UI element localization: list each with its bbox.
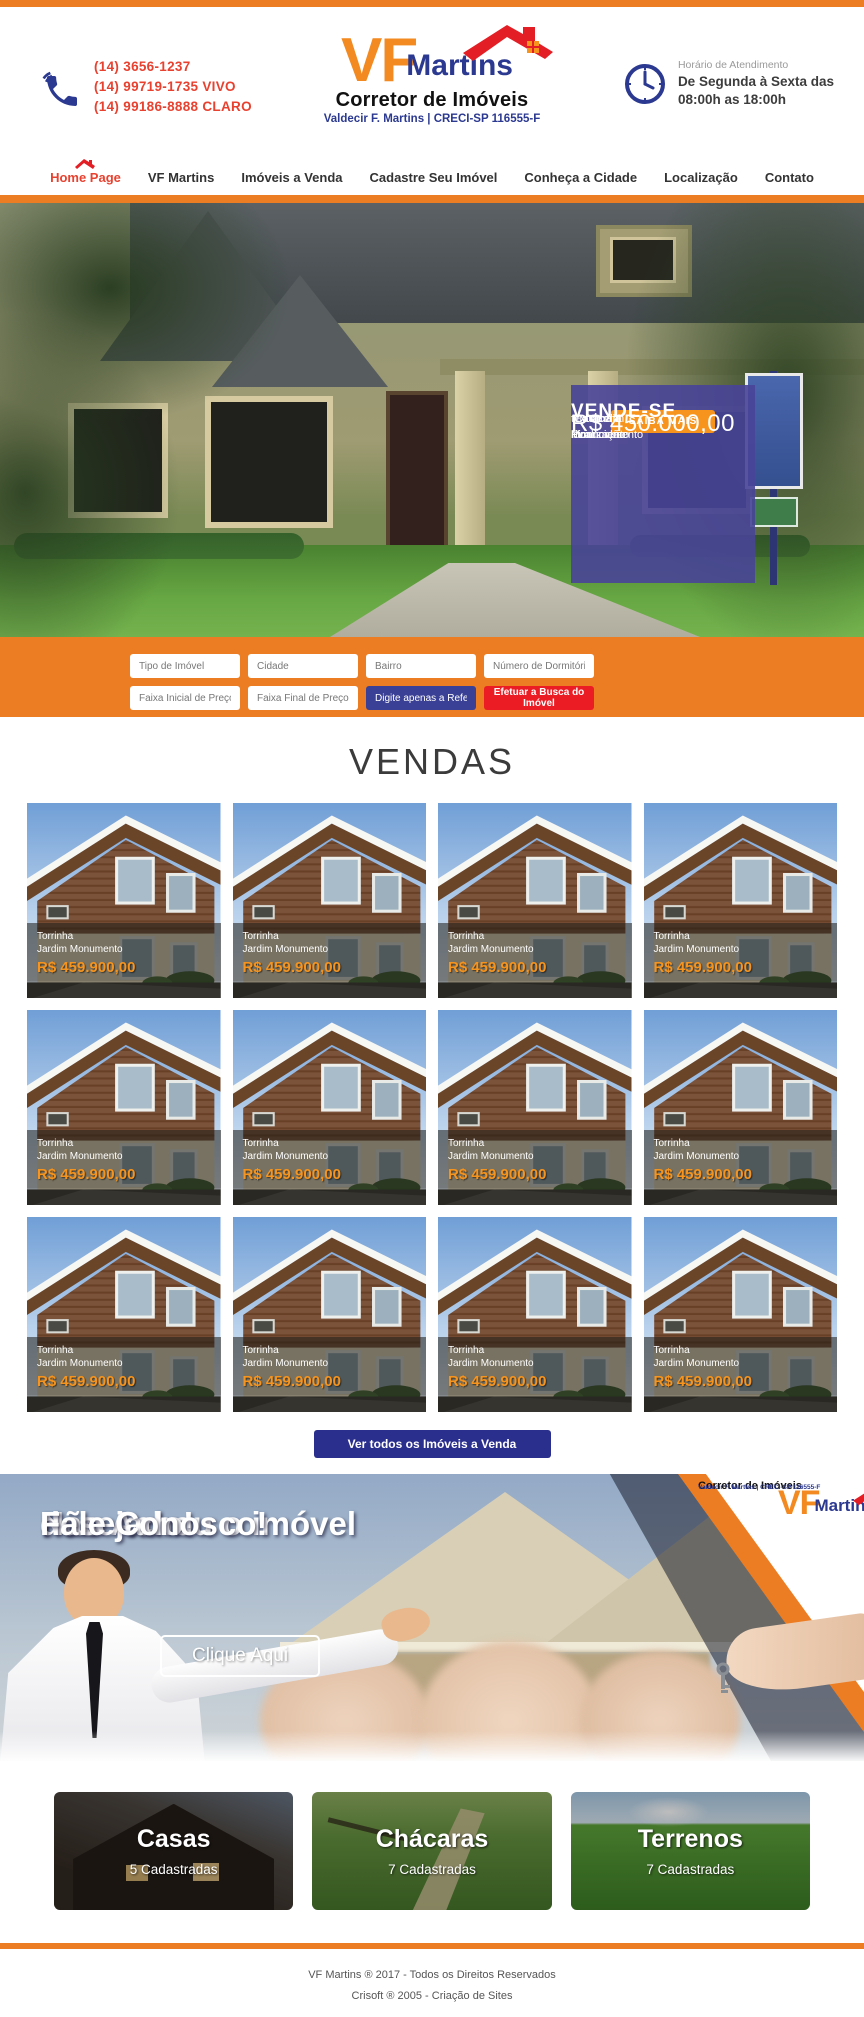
property-neighborhood: Jardim Monumento <box>448 1150 622 1163</box>
opening-hours: Horário de Atendimento De Segunda à Sext… <box>622 59 834 109</box>
property-price: R$ 459.900,00 <box>243 1166 417 1183</box>
property-city: Torrinha <box>654 930 828 943</box>
nav-imoveis-a-venda[interactable]: Imóveis a Venda <box>241 170 342 185</box>
neighborhood-input[interactable] <box>366 654 476 678</box>
property-neighborhood: Jardim Monumento <box>243 1150 417 1163</box>
property-card[interactable]: Torrinha Jardim Monumento R$ 459.900,00 <box>233 1217 427 1412</box>
property-card[interactable]: Torrinha Jardim Monumento R$ 459.900,00 <box>644 803 838 998</box>
footer-credits: Crisoft ® 2005 - Criação de Sites <box>0 1986 864 2007</box>
hours-line2: 08:00h as 18:00h <box>678 91 834 109</box>
property-neighborhood: Jardim Monumento <box>37 1357 211 1370</box>
property-city: Torrinha <box>37 1137 211 1150</box>
property-neighborhood: Jardim Monumento <box>243 943 417 956</box>
property-neighborhood: Jardim Monumento <box>37 943 211 956</box>
property-type-input[interactable] <box>130 654 240 678</box>
property-city: Torrinha <box>448 1344 622 1357</box>
hours-line1: De Segunda à Sexta das <box>678 73 834 91</box>
category-count: 7 Cadastradas <box>646 1862 734 1877</box>
property-city: Torrinha <box>37 1344 211 1357</box>
property-neighborhood: Jardim Monumento <box>448 1357 622 1370</box>
nav-localizacao[interactable]: Localização <box>664 170 738 185</box>
property-city: Torrinha <box>654 1137 828 1150</box>
property-search-bar: Efetuar a Busca do Imóvel <box>0 637 864 717</box>
property-neighborhood: Jardim Monumento <box>654 943 828 956</box>
bedrooms-input[interactable] <box>484 654 594 678</box>
logo-vf-text: VF <box>341 26 416 95</box>
category-casas[interactable]: Casas 5 Cadastradas <box>54 1792 293 1910</box>
hours-label: Horário de Atendimento <box>678 59 834 71</box>
property-price: R$ 459.900,00 <box>654 959 828 976</box>
category-count: 5 Cadastradas <box>130 1862 218 1877</box>
property-city: Torrinha <box>243 1137 417 1150</box>
property-price: R$ 459.900,00 <box>243 1373 417 1390</box>
property-price: R$ 459.900,00 <box>448 959 622 976</box>
nav-vf-martins[interactable]: VF Martins <box>148 170 214 185</box>
property-neighborhood: Jardim Monumento <box>37 1150 211 1163</box>
property-city: Torrinha <box>448 930 622 943</box>
vendas-section: VENDAS Torrinha Jardim Monumento R$ 459.… <box>0 741 864 1458</box>
property-price: R$ 459.900,00 <box>37 1166 211 1183</box>
property-neighborhood: Jardim Monumento <box>243 1357 417 1370</box>
footer-copyright: VF Martins ® 2017 - Todos os Direitos Re… <box>0 1965 864 1986</box>
property-price: R$ 459.900,00 <box>243 959 417 976</box>
property-card[interactable]: Torrinha Jardim Monumento R$ 459.900,00 <box>233 1010 427 1205</box>
clock-icon <box>622 61 668 107</box>
property-card[interactable]: Torrinha Jardim Monumento R$ 459.900,00 <box>644 1010 838 1205</box>
hero-front-door <box>386 391 448 559</box>
logo-roof-icon <box>852 1482 864 1508</box>
property-card[interactable]: Torrinha Jardim Monumento R$ 459.900,00 <box>438 1217 632 1412</box>
property-price: R$ 459.900,00 <box>654 1166 828 1183</box>
vendas-title: VENDAS <box>0 741 864 783</box>
contact-banner: Não Achou o imóvel desejado! Fale Conosc… <box>0 1474 864 1761</box>
category-title: Terrenos <box>638 1825 743 1854</box>
property-price: R$ 459.900,00 <box>448 1373 622 1390</box>
nav-conheca-a-cidade[interactable]: Conheça a Cidade <box>524 170 637 185</box>
logo-creci: Valdecir F. Martins | CRECI-SP 116555-F <box>0 113 864 125</box>
city-input[interactable] <box>248 654 358 678</box>
main-nav: Home Page VF Martins Imóveis a Venda Cad… <box>0 160 864 195</box>
featured-listing-overlay: VENDE-SE Casa em Piracicaba no Jardim Mo… <box>571 385 755 583</box>
home-roof-icon <box>74 158 96 170</box>
category-title: Casas <box>137 1825 211 1854</box>
nav-home-page[interactable]: Home Page <box>50 170 121 185</box>
nav-cadastre-seu-imovel[interactable]: Cadastre Seu Imóvel <box>370 170 498 185</box>
property-card[interactable]: Torrinha Jardim Monumento R$ 459.900,00 <box>27 1010 221 1205</box>
header: (14) 3656-1237 (14) 99719-1735 VIVO (14)… <box>0 7 864 160</box>
property-neighborhood: Jardim Monumento <box>654 1357 828 1370</box>
nav-contato[interactable]: Contato <box>765 170 814 185</box>
hero-photo: VENDE-SE Casa em Piracicaba no Jardim Mo… <box>0 203 864 637</box>
category-title: Chácaras <box>376 1825 489 1854</box>
property-city: Torrinha <box>243 930 417 943</box>
search-submit-button[interactable]: Efetuar a Busca do Imóvel <box>484 686 594 710</box>
property-neighborhood: Jardim Monumento <box>448 943 622 956</box>
footer: VF Martins ® 2017 - Todos os Direitos Re… <box>0 1943 864 2017</box>
property-card[interactable]: Torrinha Jardim Monumento R$ 459.900,00 <box>27 803 221 998</box>
property-price: R$ 459.900,00 <box>448 1166 622 1183</box>
see-all-listings-button[interactable]: Ver todos os Imóveis a Venda <box>314 1430 551 1458</box>
keys-icon <box>710 1662 736 1696</box>
property-price: R$ 459.900,00 <box>37 959 211 976</box>
category-chacaras[interactable]: Chácaras 7 Cadastradas <box>312 1792 551 1910</box>
property-card[interactable]: Torrinha Jardim Monumento R$ 459.900,00 <box>644 1217 838 1412</box>
price-max-input[interactable] <box>248 686 358 710</box>
category-cards: Casas 5 Cadastradas Chácaras 7 Cadastrad… <box>54 1792 810 1910</box>
featured-price: R$ 450.000,00 <box>571 410 735 438</box>
reference-input[interactable] <box>366 686 476 710</box>
property-card[interactable]: Torrinha Jardim Monumento R$ 459.900,00 <box>233 803 427 998</box>
property-card[interactable]: Torrinha Jardim Monumento R$ 459.900,00 <box>438 803 632 998</box>
banner-logo-corner: VFMartins Corretor de Imóveis Valdecir F… <box>554 1474 864 1761</box>
clique-aqui-button[interactable]: Clique Aqui <box>160 1635 320 1677</box>
property-price: R$ 459.900,00 <box>37 1373 211 1390</box>
nav-accent-bar <box>0 195 864 203</box>
top-accent-bar <box>0 0 864 7</box>
property-city: Torrinha <box>37 930 211 943</box>
property-city: Torrinha <box>448 1137 622 1150</box>
category-count: 7 Cadastradas <box>388 1862 476 1877</box>
listings-grid: Torrinha Jardim Monumento R$ 459.900,00 … <box>27 803 837 1412</box>
property-price: R$ 459.900,00 <box>654 1373 828 1390</box>
property-neighborhood: Jardim Monumento <box>654 1150 828 1163</box>
property-city: Torrinha <box>243 1344 417 1357</box>
property-card[interactable]: Torrinha Jardim Monumento R$ 459.900,00 <box>27 1217 221 1412</box>
property-city: Torrinha <box>654 1344 828 1357</box>
property-card[interactable]: Torrinha Jardim Monumento R$ 459.900,00 <box>438 1010 632 1205</box>
price-min-input[interactable] <box>130 686 240 710</box>
category-terrenos[interactable]: Terrenos 7 Cadastradas <box>571 1792 810 1910</box>
logo-roof-icon <box>461 21 561 65</box>
